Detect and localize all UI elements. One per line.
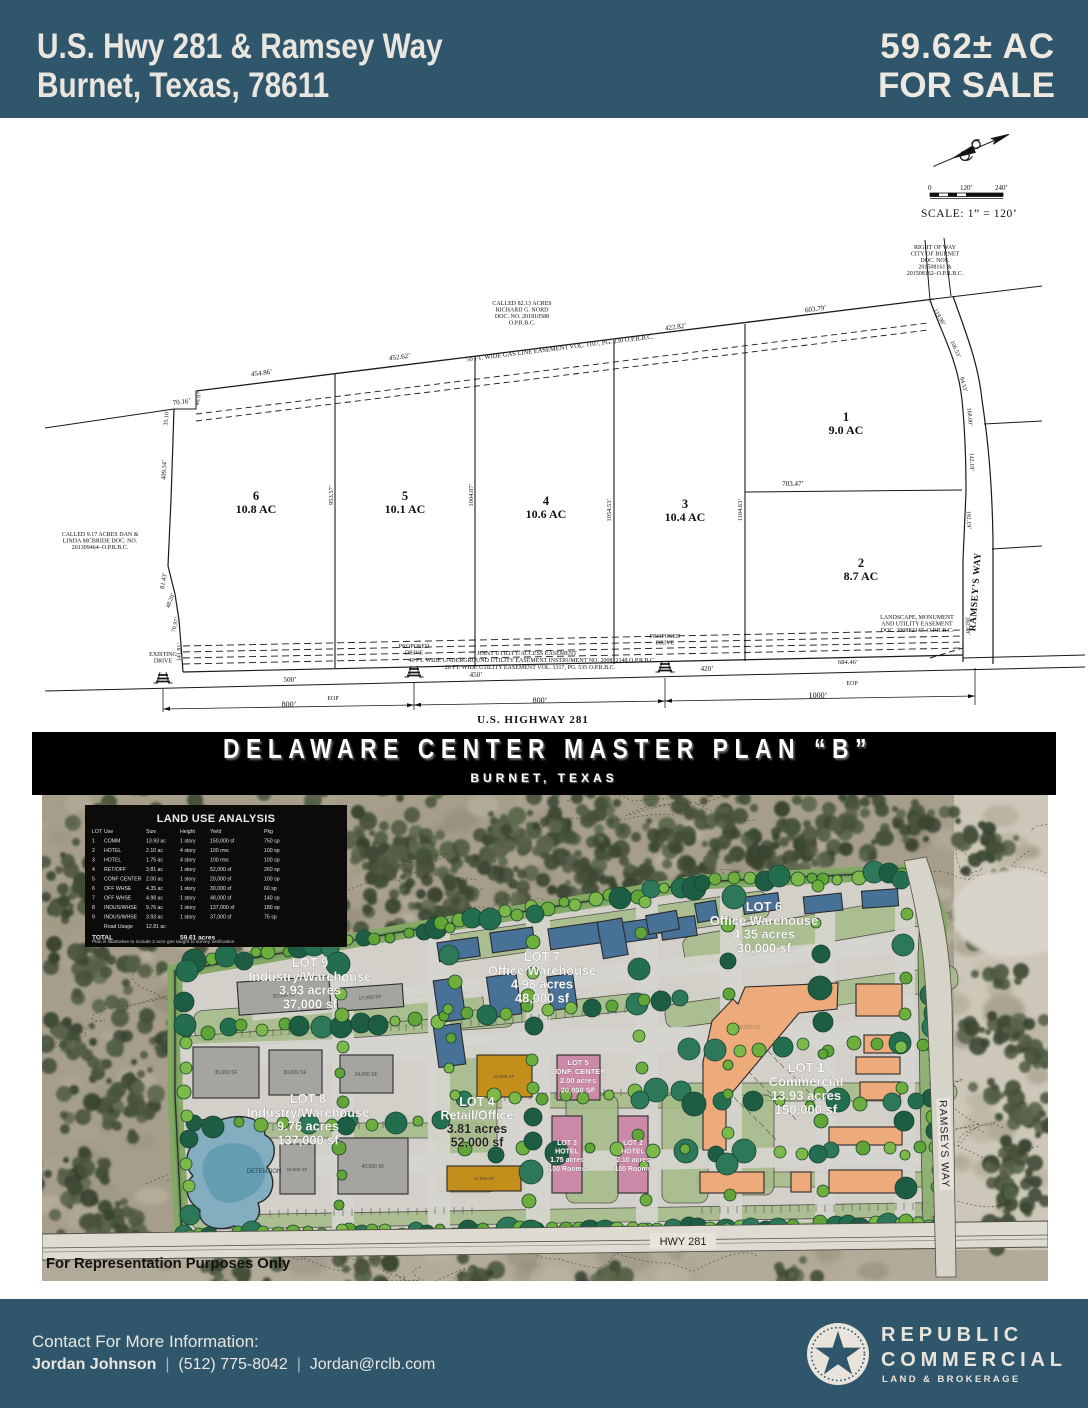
svg-text:SCALE: 1” = 120’: SCALE: 1” = 120’ bbox=[921, 208, 1017, 220]
svg-text:142.19’: 142.19’ bbox=[968, 453, 975, 472]
svg-text:800’: 800’ bbox=[533, 696, 548, 705]
svg-text:PROPOSED: PROPOSED bbox=[399, 644, 430, 650]
svg-text:35.10: 35.10 bbox=[163, 412, 170, 426]
svg-text:10.1 AC: 10.1 AC bbox=[385, 502, 426, 516]
svg-text:COMMERCIAL: COMMERCIAL bbox=[881, 1349, 1067, 1371]
svg-text:3: 3 bbox=[682, 497, 688, 511]
svg-text:LANDSCAPE, MONUMENT: LANDSCAPE, MONUMENT bbox=[880, 615, 954, 621]
svg-text:EOP: EOP bbox=[846, 681, 858, 687]
svg-text:DOC. 2008F2147–O.P.R.B.C.: DOC. 2008F2147–O.P.R.B.C. bbox=[881, 628, 954, 634]
svg-text:10.6 AC: 10.6 AC bbox=[526, 507, 567, 521]
svg-text:DOC. NO. 201810588: DOC. NO. 201810588 bbox=[495, 314, 549, 320]
svg-text:EXISTING: EXISTING bbox=[149, 652, 177, 658]
svg-text:168.00’: 168.00’ bbox=[965, 407, 973, 426]
svg-text:O.P.R.B.C.: O.P.R.B.C. bbox=[509, 321, 536, 327]
svg-text:450’: 450’ bbox=[470, 671, 483, 679]
svg-text:50 FT. WIDE GAS LINE EASEMENT: 50 FT. WIDE GAS LINE EASEMENT VOL. 1107,… bbox=[466, 334, 654, 364]
svg-text:JOINT UTILITY/ACCESS EASEMENT: JOINT UTILITY/ACCESS EASEMENT bbox=[477, 651, 577, 657]
svg-text:LAND & BROKERAGE: LAND & BROKERAGE bbox=[882, 1374, 1021, 1385]
svg-text:454.86’: 454.86’ bbox=[251, 368, 273, 379]
svg-text:2: 2 bbox=[858, 556, 864, 570]
svg-text:8.7 AC: 8.7 AC bbox=[844, 569, 879, 583]
svg-text:120’: 120’ bbox=[960, 184, 973, 192]
svg-text:DRIVE: DRIVE bbox=[405, 651, 424, 657]
svg-text:CALLED 82.13 ACRES: CALLED 82.13 ACRES bbox=[492, 301, 551, 307]
svg-text:703.47’: 703.47’ bbox=[782, 480, 804, 488]
svg-text:5: 5 bbox=[402, 489, 408, 503]
svg-text:420’: 420’ bbox=[701, 665, 714, 673]
svg-text:4: 4 bbox=[543, 494, 550, 508]
svg-text:1000’: 1000’ bbox=[809, 691, 828, 700]
svg-text:1: 1 bbox=[843, 410, 849, 424]
svg-text:6: 6 bbox=[253, 489, 259, 503]
svg-text:RAMSEY’S WAY: RAMSEY’S WAY bbox=[968, 552, 983, 632]
svg-text:106.53’: 106.53’ bbox=[948, 340, 961, 359]
svg-text:LINDA MCBRIDE DOC. NO.: LINDA MCBRIDE DOC. NO. bbox=[63, 539, 138, 545]
svg-text:70.16’: 70.16’ bbox=[172, 397, 191, 407]
svg-text:CALLED 9.17 ACRES DAN &: CALLED 9.17 ACRES DAN & bbox=[62, 532, 139, 538]
svg-text:DOC. NOS.: DOC. NOS. bbox=[920, 258, 950, 264]
svg-text:240’: 240’ bbox=[995, 184, 1008, 192]
svg-text:48.97’: 48.97’ bbox=[195, 390, 204, 406]
svg-text:1104.63’: 1104.63’ bbox=[737, 498, 744, 521]
svg-text:PROPOSED: PROPOSED bbox=[650, 634, 681, 640]
svg-text:684.46’: 684.46’ bbox=[838, 659, 858, 666]
svg-text:201508161 &: 201508161 & bbox=[918, 265, 952, 271]
svg-text:452.62’: 452.62’ bbox=[389, 352, 411, 363]
svg-text:U.S. HIGHWAY 281: U.S. HIGHWAY 281 bbox=[477, 714, 589, 726]
svg-text:10.4 AC: 10.4 AC bbox=[665, 510, 706, 524]
svg-text:10.8 AC: 10.8 AC bbox=[236, 502, 277, 516]
svg-text:800’: 800’ bbox=[282, 700, 297, 709]
svg-text:141.81’: 141.81’ bbox=[177, 643, 184, 662]
svg-text:201508162–O.P.R.B.C.: 201508162–O.P.R.B.C. bbox=[907, 271, 964, 277]
svg-text:1054.53’: 1054.53’ bbox=[606, 498, 613, 521]
svg-text:DRIVE: DRIVE bbox=[656, 641, 675, 647]
svg-text:409.34’: 409.34’ bbox=[160, 460, 168, 480]
svg-text:40 FT. WIDE UNDERGROUND UTILIT: 40 FT. WIDE UNDERGROUND UTILITY EASEMENT… bbox=[409, 658, 656, 664]
svg-text:81.43’: 81.43’ bbox=[159, 572, 169, 590]
svg-text:48.26’: 48.26’ bbox=[166, 592, 177, 609]
svg-text:DRIVE: DRIVE bbox=[154, 659, 173, 665]
svg-text:EOP: EOP bbox=[327, 696, 339, 702]
svg-text:CITY OF BURNET: CITY OF BURNET bbox=[911, 252, 960, 258]
svg-text:AND UTILITY EASEMENT: AND UTILITY EASEMENT bbox=[881, 622, 953, 628]
svg-text:192.19’: 192.19’ bbox=[965, 511, 972, 530]
svg-text:9.0 AC: 9.0 AC bbox=[829, 423, 864, 437]
svg-text:201309464–O.P.R.B.C.: 201309464–O.P.R.B.C. bbox=[72, 545, 129, 551]
svg-text:0: 0 bbox=[928, 184, 932, 192]
svg-text:1004.07’: 1004.07’ bbox=[468, 483, 475, 506]
svg-text:REPUBLIC: REPUBLIC bbox=[881, 1324, 1023, 1346]
svg-text:953.57’: 953.57’ bbox=[328, 485, 335, 505]
svg-text:RICHARD G. NORD: RICHARD G. NORD bbox=[496, 308, 550, 314]
svg-text:500’: 500’ bbox=[284, 676, 297, 684]
svg-text:RIGHT OF WAY: RIGHT OF WAY bbox=[914, 245, 957, 251]
